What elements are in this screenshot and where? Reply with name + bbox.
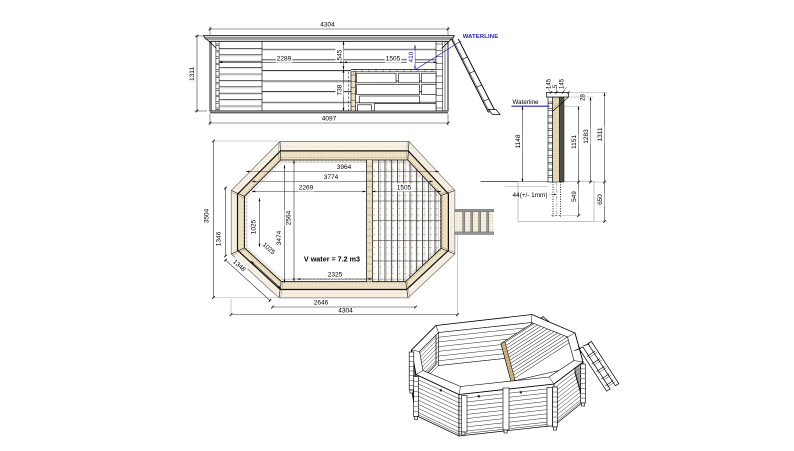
svg-text:1346: 1346 xyxy=(216,231,223,246)
svg-text:145: 145 xyxy=(560,78,566,89)
svg-text:WATERLINE: WATERLINE xyxy=(463,34,499,40)
svg-text:1505: 1505 xyxy=(397,184,412,191)
svg-text:4304: 4304 xyxy=(338,307,353,314)
svg-text:545: 545 xyxy=(336,49,343,60)
svg-text:1311: 1311 xyxy=(597,127,604,141)
svg-text:1505: 1505 xyxy=(386,55,401,62)
svg-text:44(+/- 1mm): 44(+/- 1mm) xyxy=(513,192,548,199)
svg-text:2646: 2646 xyxy=(314,300,329,307)
svg-text:1148: 1148 xyxy=(515,134,522,148)
svg-text:650: 650 xyxy=(597,194,604,205)
svg-text:1311: 1311 xyxy=(189,67,196,81)
svg-text:3474: 3474 xyxy=(276,230,283,245)
svg-text:549: 549 xyxy=(571,191,578,202)
svg-text:738: 738 xyxy=(336,84,343,95)
svg-text:2325: 2325 xyxy=(328,272,343,279)
svg-text:2289: 2289 xyxy=(277,55,292,62)
svg-text:3504: 3504 xyxy=(204,208,211,223)
svg-text:V water = 7.2 m3: V water = 7.2 m3 xyxy=(304,255,360,264)
svg-text:4304: 4304 xyxy=(320,22,335,29)
svg-text:1025: 1025 xyxy=(251,219,258,234)
svg-text:3774: 3774 xyxy=(324,174,339,181)
svg-text:3964: 3964 xyxy=(337,164,352,171)
svg-text:410: 410 xyxy=(408,51,415,62)
svg-text:1151: 1151 xyxy=(571,135,578,149)
svg-text:2564: 2564 xyxy=(286,210,293,225)
svg-text:Waterline: Waterline xyxy=(513,99,539,106)
svg-text:1283: 1283 xyxy=(583,129,590,144)
svg-text:4097: 4097 xyxy=(322,116,337,123)
svg-text:2269: 2269 xyxy=(299,184,314,191)
